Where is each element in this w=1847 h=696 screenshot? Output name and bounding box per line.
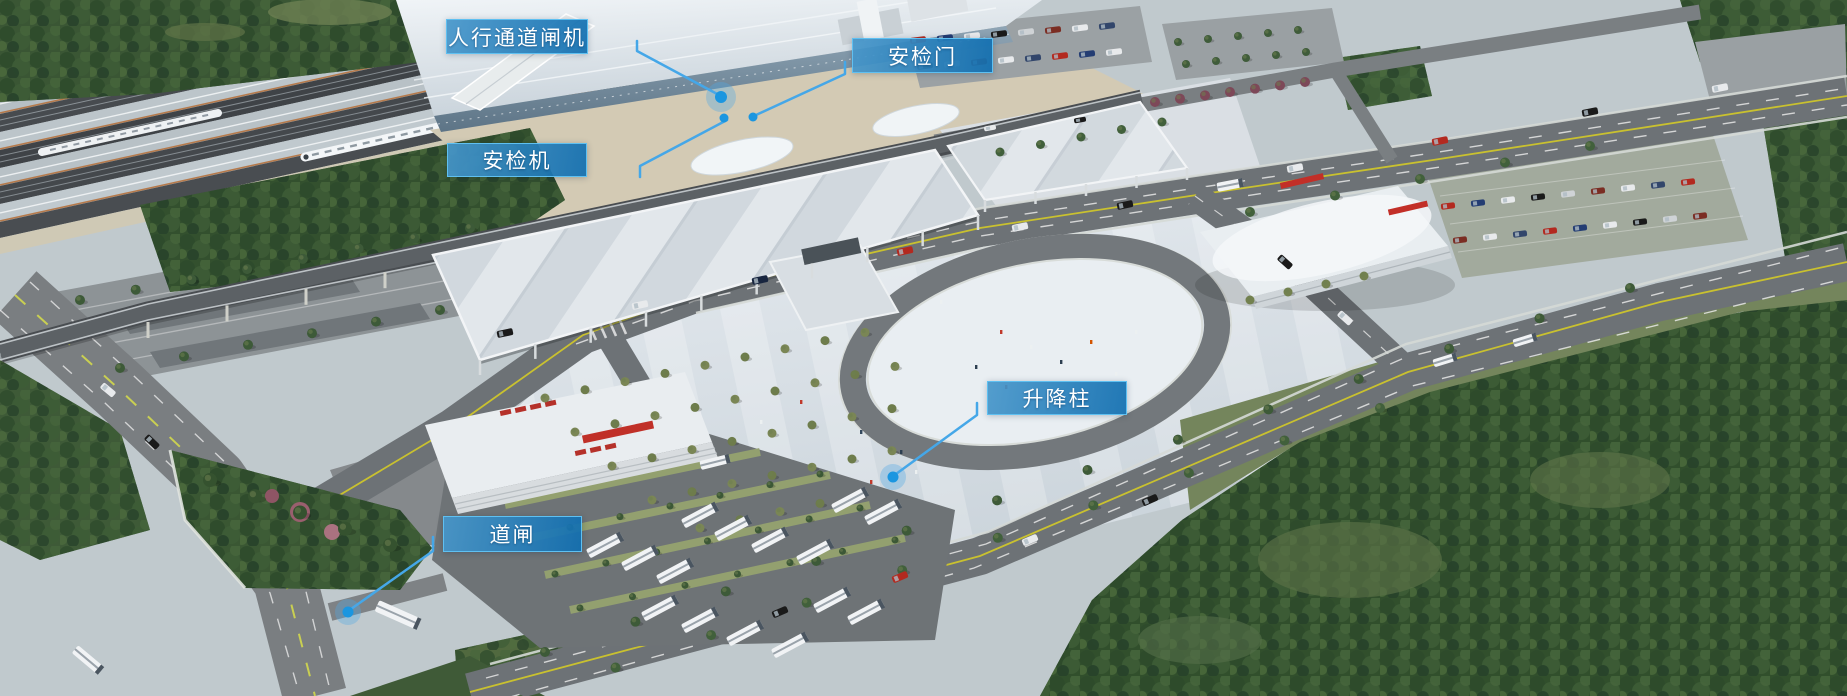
callout-label-text: 安检门 — [888, 41, 957, 71]
callout-label-text: 人行通道闸机 — [448, 22, 586, 52]
callout-security-scanner[interactable]: 安检机 — [447, 143, 587, 177]
station-aerial-render: 人行通道闸机 安检门 安检机 升降柱 道闸 — [0, 0, 1847, 696]
callout-security-door[interactable]: 安检门 — [852, 38, 993, 73]
callout-road-barrier[interactable]: 道闸 — [443, 516, 582, 552]
callout-label-text: 安检机 — [483, 145, 552, 175]
callout-lifting-bollard[interactable]: 升降柱 — [987, 381, 1127, 415]
callout-label-text: 升降柱 — [1023, 383, 1092, 413]
callout-pedestrian-channel-gate[interactable]: 人行通道闸机 — [446, 19, 588, 54]
callout-label-text: 道闸 — [490, 519, 536, 549]
scene-background — [0, 0, 1847, 696]
